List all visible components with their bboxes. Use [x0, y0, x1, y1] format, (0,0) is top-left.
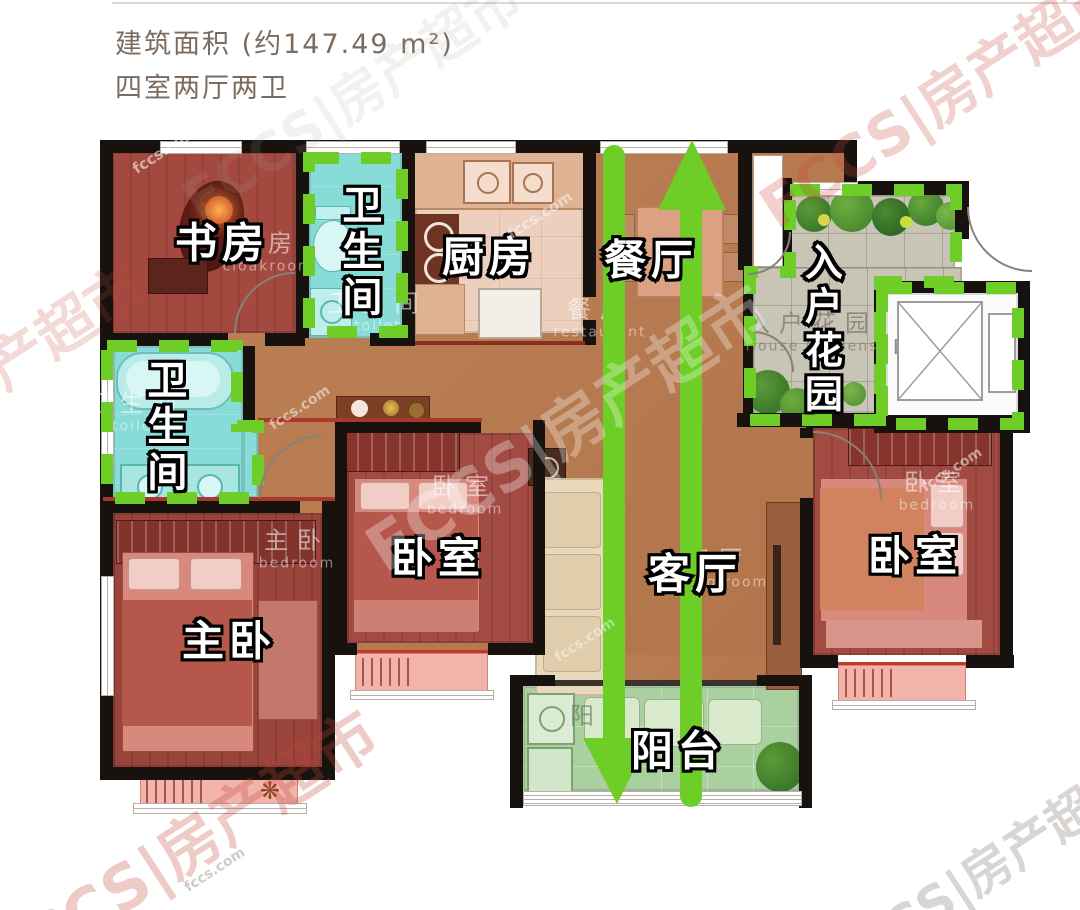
wardrobe — [342, 432, 460, 472]
rug — [826, 620, 982, 648]
wall — [335, 643, 357, 655]
wall — [100, 500, 300, 513]
bedroom-mid-label: 卧室 — [391, 525, 485, 586]
balcony-orig-label: 阳台 — [570, 701, 636, 731]
sink-basin-icon — [523, 173, 543, 193]
washer-door-icon — [539, 706, 565, 732]
fridge — [478, 288, 542, 339]
pillow — [128, 558, 180, 590]
living-label: 客厅 — [648, 541, 742, 602]
entry-garden-label: 入户花园 — [801, 242, 840, 418]
wall — [265, 333, 305, 346]
door-arc-unit-entry — [968, 207, 1032, 271]
master-label: 主卧 — [182, 608, 276, 669]
wall — [799, 675, 812, 808]
bedroom-right-orig-label: 卧室 bedroom — [899, 467, 976, 515]
wall — [100, 333, 228, 346]
layout-title: 四室两厅两卫 — [115, 66, 289, 105]
sink-basin-icon — [477, 172, 499, 194]
plant — [818, 214, 830, 226]
bathroom-left-label: 卫生间 — [143, 359, 184, 497]
laundry-sink — [527, 747, 573, 795]
sofa-cushion — [543, 492, 601, 548]
balcony-window — [523, 791, 802, 806]
plant — [756, 742, 804, 792]
plant — [900, 216, 912, 228]
kitchen-label: 厨房 — [442, 224, 536, 285]
wall — [858, 181, 968, 195]
rug — [354, 600, 478, 632]
area-title: 建筑面积 (约147.49 m²) — [115, 22, 454, 61]
flower-icon — [383, 400, 399, 416]
window — [793, 182, 858, 196]
tv-icon — [773, 545, 781, 645]
wall — [738, 152, 752, 270]
wall — [583, 152, 596, 297]
wall — [488, 643, 545, 655]
sofa-cushion — [543, 554, 601, 610]
elevator-panel — [988, 313, 1016, 393]
wall — [874, 281, 1030, 293]
balcony-label: 阳台 — [631, 718, 725, 779]
bedroom-mid-bay-window — [355, 650, 488, 693]
radiator-icon — [362, 658, 414, 686]
plate-icon — [351, 400, 368, 417]
elevator-label: 电梯间 elevator — [891, 332, 990, 387]
kitchen-sink-1 — [463, 160, 511, 204]
dining-label: 餐厅 — [604, 227, 698, 288]
entry-door-niche — [753, 155, 783, 267]
window — [600, 141, 728, 154]
washing-machine — [527, 693, 575, 745]
wall-accent — [258, 418, 482, 422]
master-orig-label: 主卧 bedroom — [259, 525, 336, 573]
wall — [800, 498, 813, 668]
wall — [966, 655, 1014, 668]
plant-icon: ❋ — [260, 777, 280, 805]
wall-accent — [103, 497, 335, 501]
wall — [100, 767, 335, 780]
wall — [874, 421, 1030, 433]
window — [426, 141, 516, 154]
plant — [842, 382, 866, 406]
window — [306, 141, 400, 154]
wall — [1018, 281, 1030, 433]
radiator-icon — [146, 779, 208, 805]
wall — [844, 140, 857, 186]
wardrobe — [848, 428, 992, 466]
dining-orig-label: 餐厅 restaurant — [554, 294, 647, 342]
bathroom-top-label: 卫生间 — [338, 184, 379, 322]
wall — [955, 181, 969, 239]
bathroom-left-extension — [243, 426, 258, 498]
watermark-site: fccs.com — [182, 845, 248, 896]
window — [160, 141, 242, 154]
wall — [874, 281, 886, 433]
sofa-cushion — [543, 616, 601, 672]
wall — [800, 428, 813, 438]
wall — [757, 675, 812, 686]
bedroom-mid-orig-label: 卧室 bedroom — [427, 471, 504, 519]
top-rule — [112, 2, 1080, 4]
wall — [243, 346, 255, 426]
wall — [806, 655, 838, 668]
kitchen-sink-2 — [512, 162, 554, 204]
bedroom-right-label: 卧室 — [868, 523, 962, 584]
window — [101, 576, 114, 696]
window-sill — [832, 700, 976, 710]
wall — [1000, 428, 1013, 668]
wall — [510, 675, 555, 686]
tv-cabinet — [766, 502, 802, 690]
window-sill — [350, 690, 494, 700]
pillow — [360, 482, 410, 510]
radiator-icon — [845, 669, 897, 697]
study-label: 书房 — [175, 210, 269, 271]
floorplan-page: 建筑面积 (约147.49 m²) 四室两厅两卫 ❋ — [0, 0, 1080, 910]
watermark-brand: FCCS|房产超市 — [808, 741, 1080, 910]
wall — [533, 420, 545, 655]
sofa — [535, 478, 611, 696]
bedroom-right-bay-window — [838, 662, 966, 703]
pillow — [190, 558, 242, 590]
wall — [335, 420, 347, 655]
window-sill — [133, 803, 307, 814]
wall — [510, 675, 523, 808]
